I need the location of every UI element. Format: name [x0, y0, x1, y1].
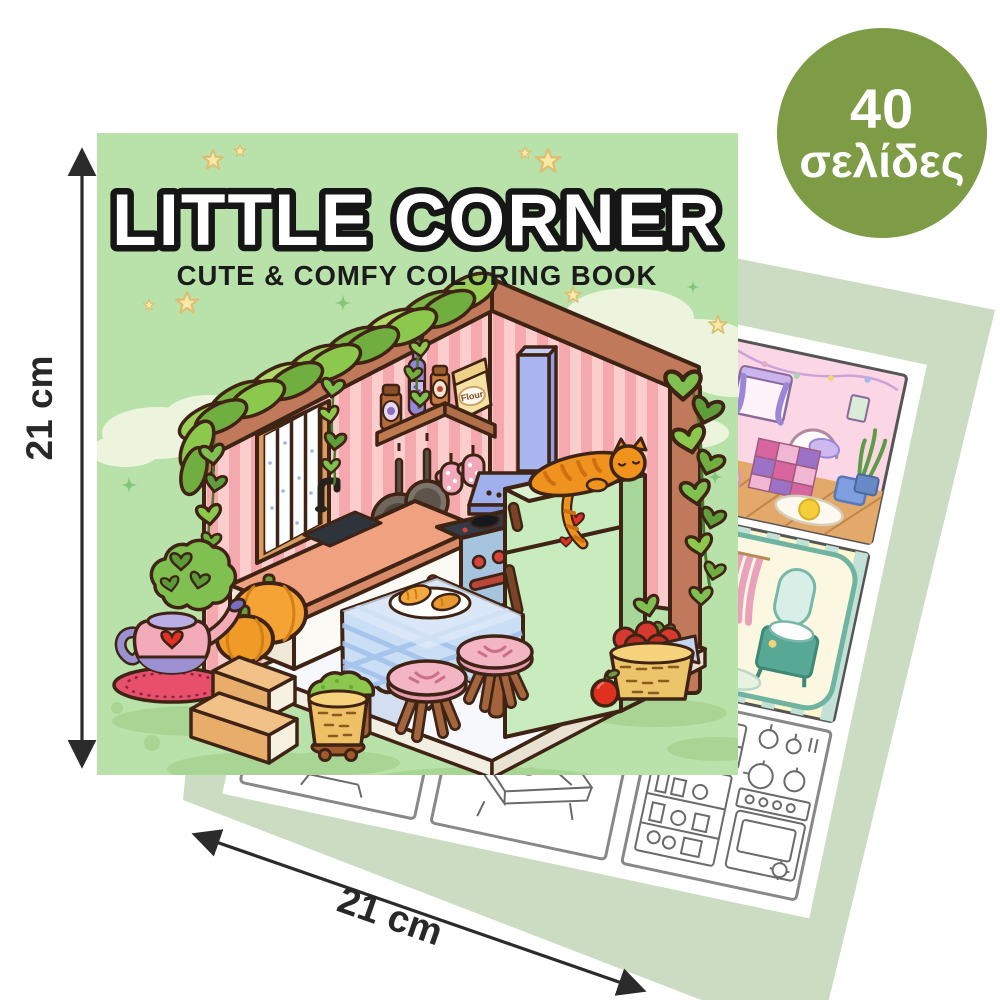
- dimension-annotations: 21 cm 21 cm: [0, 0, 1000, 1000]
- width-dimension-label: 21 cm: [332, 879, 448, 954]
- height-dimension-label: 21 cm: [19, 356, 60, 461]
- product-image: Flour: [0, 0, 1000, 1000]
